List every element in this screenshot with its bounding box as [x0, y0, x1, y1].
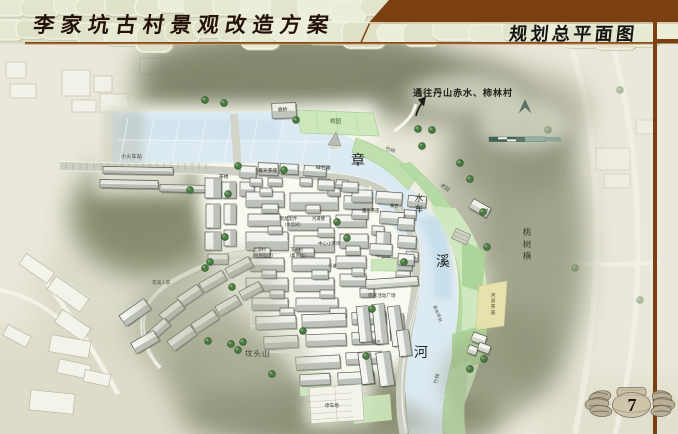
svg-text:停车场: 停车场 [325, 402, 339, 409]
svg-text:与谐: 与谐 [328, 262, 336, 269]
svg-text:李家坑古村景观改造方案: 李家坑古村景观改造方案 [32, 12, 337, 37]
svg-text:树: 树 [523, 239, 532, 249]
svg-text:桃: 桃 [523, 227, 532, 237]
svg-text:茶: 茶 [491, 303, 496, 310]
svg-text:章: 章 [351, 152, 365, 169]
svg-text:滨: 滨 [491, 298, 496, 305]
svg-text:商店: 商店 [372, 339, 381, 346]
svg-text:小火车站: 小火车站 [121, 152, 142, 160]
svg-text:溪: 溪 [436, 254, 450, 270]
svg-text:河: 河 [414, 345, 428, 361]
svg-text:碑石滩: 碑石滩 [316, 164, 331, 171]
svg-text:横: 横 [523, 251, 532, 261]
svg-text:下湖村: 下湖村 [290, 246, 304, 253]
svg-text:宗族活动广场: 宗族活动广场 [368, 292, 396, 299]
svg-text:河道楼: 河道楼 [312, 215, 326, 222]
svg-text:车: 车 [415, 204, 424, 214]
svg-text:露天茶座: 露天茶座 [362, 207, 380, 214]
svg-text:篱笆: 篱笆 [390, 202, 398, 209]
svg-text:（集贤居）: （集贤居） [287, 252, 308, 259]
svg-text:廊桥: 廊桥 [278, 106, 288, 113]
svg-text:河: 河 [491, 292, 496, 299]
svg-text:坟头山: 坟头山 [245, 348, 271, 358]
svg-text:通往丹山赤水、柿林村: 通往丹山赤水、柿林村 [413, 87, 513, 98]
svg-text:桃园: 桃园 [330, 117, 342, 125]
svg-text:露天茶座: 露天茶座 [258, 167, 277, 174]
svg-text:水: 水 [415, 193, 424, 203]
svg-text:规划总平面图: 规划总平面图 [508, 23, 639, 44]
svg-text:中心小茶场: 中心小茶场 [318, 240, 341, 247]
svg-text:座: 座 [491, 309, 496, 316]
svg-text:（水云间）: （水云间） [282, 221, 303, 228]
svg-text:新屋里弄: 新屋里弄 [280, 215, 298, 222]
svg-text:茶楼: 茶楼 [219, 173, 229, 180]
svg-text:7: 7 [628, 395, 637, 415]
